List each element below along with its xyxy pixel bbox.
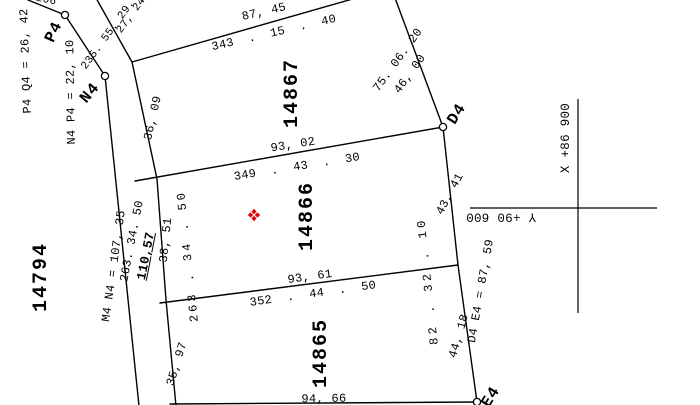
boundary-right-edge bbox=[443, 127, 477, 402]
survey-point-n4[interactable] bbox=[101, 72, 108, 79]
parcel-number-14867: 14867 bbox=[283, 58, 303, 128]
bottom-edge-distance: 94, 66 bbox=[301, 393, 346, 405]
map-drawing bbox=[0, 0, 700, 405]
parcel-number-14794: 14794 bbox=[32, 242, 52, 312]
grid-y-coordinate-label: Y +90 600 bbox=[466, 210, 536, 223]
red-cross-marker-icon bbox=[248, 209, 260, 221]
parcel-number-14866: 14866 bbox=[298, 181, 318, 251]
cadastral-map-canvas[interactable]: 14867 14866 14865 14794 P4 N4 D4 E4 P4 Q… bbox=[0, 0, 700, 405]
selected-point-marker[interactable] bbox=[248, 209, 260, 221]
note-p4-q4-distance: P4 Q4 = 26, 42 bbox=[18, 8, 34, 113]
parcel-number-14865: 14865 bbox=[312, 318, 332, 388]
survey-point-p4[interactable] bbox=[61, 11, 68, 18]
grid-x-coordinate-label: X +86 900 bbox=[560, 103, 573, 173]
note-n4-p4-distance: N4 P4 = 22, 10 bbox=[64, 39, 78, 144]
survey-point-d4[interactable] bbox=[439, 123, 446, 130]
